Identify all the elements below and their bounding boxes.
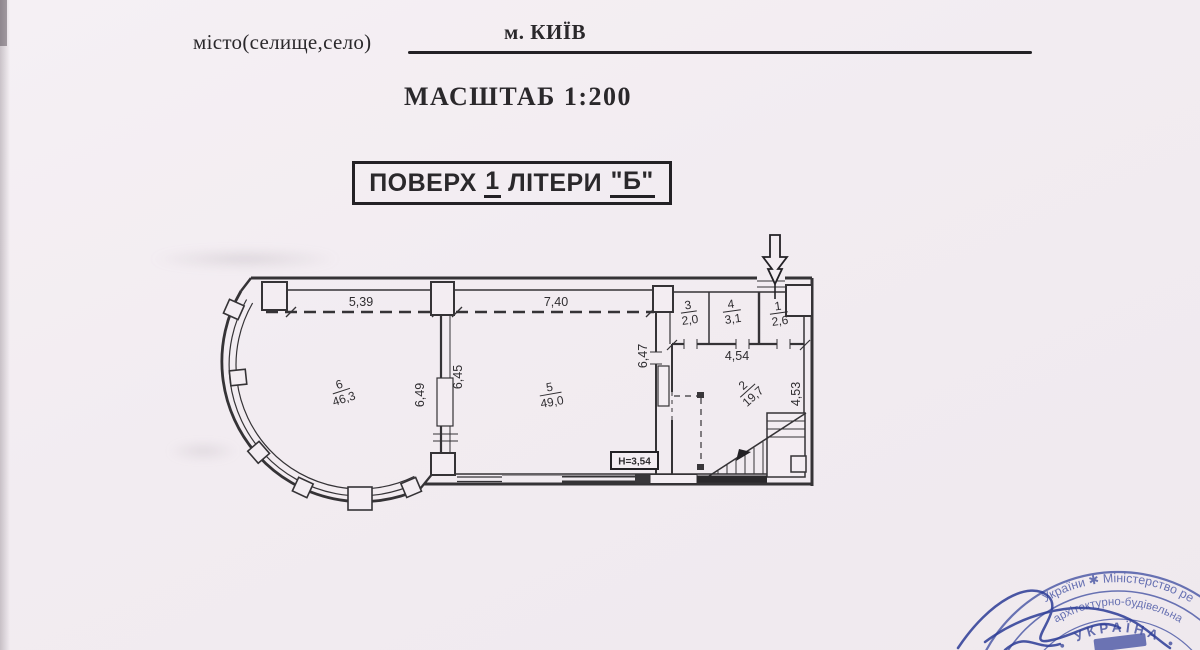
stairs [697, 413, 806, 479]
corridor-walls [650, 292, 672, 474]
room-label-4: 4 3,1 [721, 296, 743, 327]
facade-piers [223, 299, 421, 510]
dim-rooms-width: 4,54 [725, 349, 749, 363]
top-window [757, 276, 785, 289]
room-label-2: 2 19,7 [730, 372, 767, 409]
svg-text:1: 1 [774, 299, 783, 314]
scanned-floorplan-page: місто(селище,село) м. КИЇВ МАСШТАБ 1:200… [0, 0, 1200, 650]
ceiling-height-text: Н=3,54 [618, 457, 651, 468]
svg-text:3,1: 3,1 [724, 311, 743, 327]
svg-text:5: 5 [545, 380, 554, 395]
svg-text:46,3: 46,3 [331, 388, 358, 409]
dim-top-left: 5,39 [349, 295, 373, 309]
room-label-3: 3 2,0 [679, 297, 700, 328]
bottom-windows [457, 475, 697, 484]
room-label-5: 5 49,0 [537, 378, 565, 411]
dim-top-mid: 7,40 [544, 295, 568, 309]
glazing-dashed-line [266, 307, 656, 317]
entrance-arrow-icon [763, 235, 787, 299]
svg-text:2,6: 2,6 [771, 313, 790, 329]
dim-mid-depth: 6,45 [451, 365, 465, 389]
svg-text:3: 3 [684, 298, 693, 313]
svg-text:6: 6 [334, 377, 345, 392]
ceiling-height-note: Н=3,54 [611, 452, 658, 469]
svg-text:2,0: 2,0 [681, 312, 700, 328]
svg-text:4: 4 [727, 297, 736, 312]
svg-text:49,0: 49,0 [539, 393, 565, 411]
dim-mid-right-depth: 6,47 [636, 344, 650, 368]
room-label-6: 6 46,3 [326, 374, 357, 409]
official-stamp: України ✱ Міністерство ре архітектурно-б… [968, 571, 1200, 650]
floorplan-drawing: 5,39 7,40 4,54 6,49 6,45 6,47 4,53 Н=3,5… [0, 0, 1200, 650]
dim-left-depth: 6,49 [413, 383, 427, 407]
room2-dashed-opening [674, 392, 704, 470]
dim-right-depth: 4,53 [789, 382, 803, 406]
